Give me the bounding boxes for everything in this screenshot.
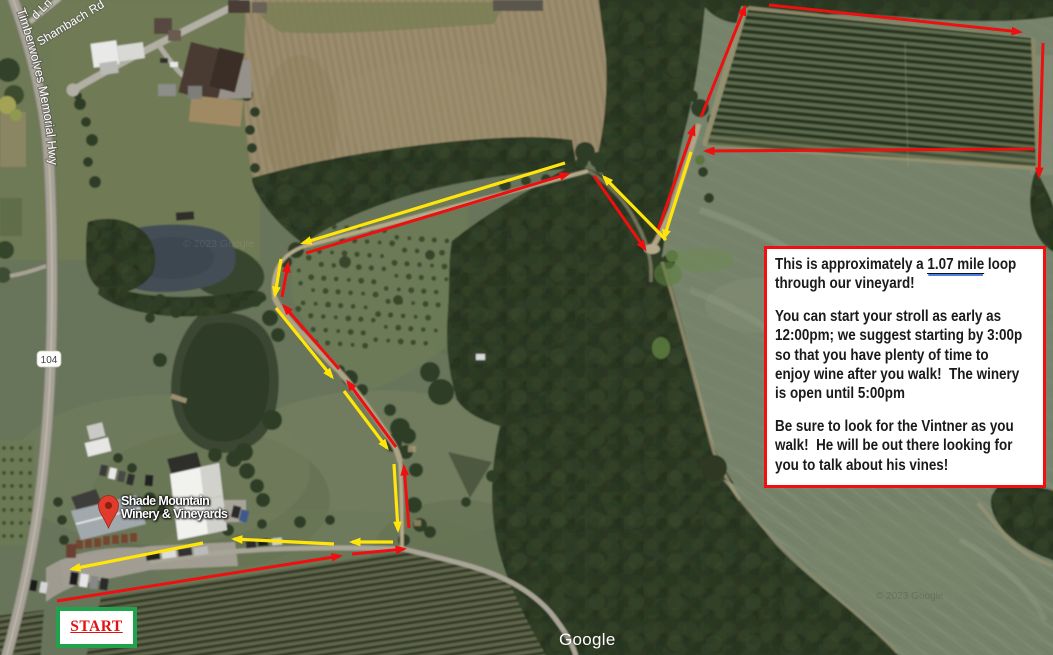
svg-text:104: 104: [41, 355, 58, 366]
svg-text:© 2023 Google: © 2023 Google: [183, 238, 254, 250]
